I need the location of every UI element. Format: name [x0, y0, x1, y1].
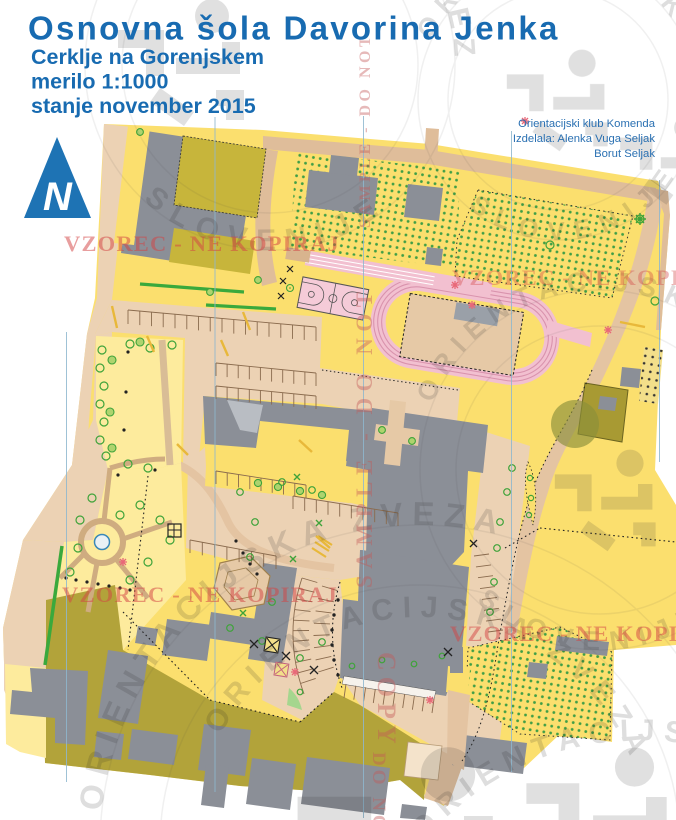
svg-text:Cerklje na Gorenjskem: Cerklje na Gorenjskem: [31, 45, 264, 69]
svg-text:DO NO: DO NO: [368, 752, 389, 820]
svg-text:VZOREC - NE KOPIR: VZOREC - NE KOPIR: [452, 265, 676, 290]
svg-text:stanje november 2015: stanje november 2015: [31, 94, 256, 118]
svg-text:COPY: COPY: [372, 652, 401, 750]
svg-text:VZOREC - NE KOPIRAJ: VZOREC - NE KOPIRAJ: [64, 231, 340, 256]
svg-text:VZOREC - NE KOPIR: VZOREC - NE KOPIR: [450, 621, 676, 646]
svg-text:Izdelala: Alenka Vuga Seljak: Izdelala: Alenka Vuga Seljak: [513, 133, 655, 145]
svg-text:Orientacijski klub Komenda: Orientacijski klub Komenda: [518, 118, 656, 130]
svg-text:Osnovna šola Davorina Jenka: Osnovna šola Davorina Jenka: [28, 10, 560, 47]
svg-text:Borut Seljak: Borut Seljak: [594, 148, 655, 160]
svg-text:merilo 1:1000: merilo 1:1000: [31, 70, 168, 94]
svg-text:VZOREC - NE KOPIRAJ: VZOREC - NE KOPIRAJ: [62, 582, 338, 607]
svg-text:SAMPLE - DO NOT: SAMPLE - DO NOT: [357, 33, 374, 228]
svg-text:SAMPLE - DO NOT: SAMPLE - DO NOT: [352, 285, 377, 588]
svg-text:N: N: [43, 175, 73, 219]
